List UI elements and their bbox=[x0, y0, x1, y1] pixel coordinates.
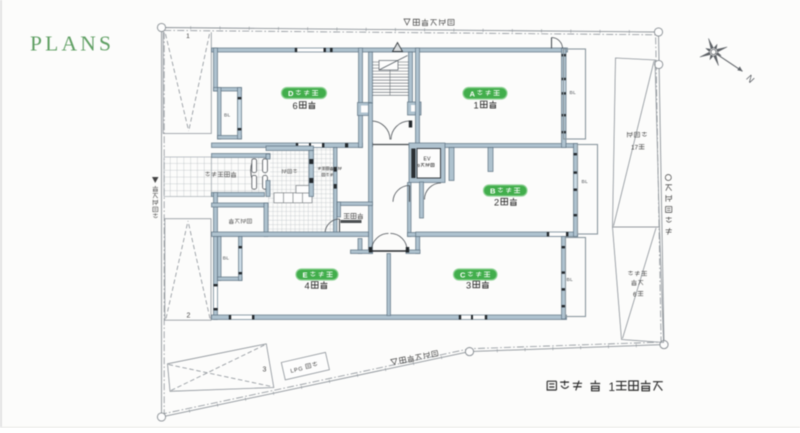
svg-text:BL: BL bbox=[567, 277, 573, 283]
svg-text:2: 2 bbox=[494, 198, 499, 208]
svg-text:BL: BL bbox=[223, 255, 229, 261]
svg-text:3: 3 bbox=[263, 367, 267, 374]
svg-text:1: 1 bbox=[609, 380, 616, 394]
svg-text:17: 17 bbox=[631, 145, 639, 152]
svg-text:2: 2 bbox=[187, 313, 191, 320]
svg-text:6: 6 bbox=[633, 292, 637, 299]
svg-text:EV: EV bbox=[424, 157, 432, 163]
svg-text:6: 6 bbox=[293, 101, 298, 111]
svg-text:C: C bbox=[460, 270, 466, 279]
svg-text:1: 1 bbox=[186, 33, 190, 40]
svg-text:BL: BL bbox=[582, 179, 588, 185]
svg-text:A: A bbox=[470, 89, 476, 98]
svg-text:3: 3 bbox=[466, 280, 471, 290]
svg-text:BL: BL bbox=[224, 112, 230, 118]
svg-text:PLANS: PLANS bbox=[30, 32, 114, 56]
svg-text:BL: BL bbox=[570, 90, 576, 96]
svg-text:E: E bbox=[303, 270, 308, 279]
svg-text:1: 1 bbox=[474, 100, 479, 110]
svg-text:4: 4 bbox=[305, 281, 310, 291]
svg-text:D: D bbox=[288, 89, 294, 98]
svg-text:B: B bbox=[490, 186, 496, 195]
